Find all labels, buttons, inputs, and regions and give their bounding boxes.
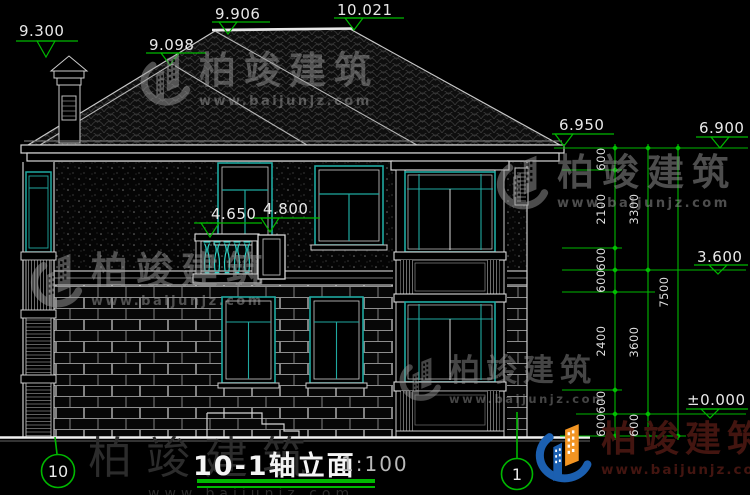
- dim-inner-600c: 600: [594, 259, 608, 303]
- elevation-label-roof-left: 9.300: [19, 22, 64, 40]
- dim-inner-600e: 600: [594, 403, 608, 447]
- title-underline-thick: [197, 479, 375, 483]
- elevation-label-second-floor: 3.600: [697, 248, 742, 266]
- elevation-drawing-canvas: 柏竣建筑 www.baijunjz.com 柏竣建筑 www.baijunjz.…: [0, 0, 750, 495]
- dim-middle-600: 600: [627, 403, 641, 447]
- elevation-label-hip: 9.098: [149, 36, 194, 54]
- watermark-brand: 柏竣建筑: [557, 154, 737, 191]
- watermark-right: 柏竣建筑 www.baijunjz.com: [492, 154, 737, 218]
- watermark-brand: 柏竣建筑: [91, 252, 271, 289]
- brand-name: 柏竣建筑: [601, 422, 750, 458]
- watermark-brand: 柏竣建筑: [449, 356, 606, 387]
- watermark-logo-icon: [396, 356, 442, 408]
- watermark-logo-icon: [136, 52, 192, 114]
- watermark-brand: 柏竣建筑: [199, 52, 379, 89]
- elevation-label-ridge-left: 9.906: [215, 5, 260, 23]
- dim-inner-600a: 600: [594, 137, 608, 181]
- axis-bubble-10: 10: [40, 462, 76, 481]
- dim-inner-2100: 2100: [594, 187, 608, 231]
- elevation-label-eave-right: 6.900: [699, 119, 744, 137]
- elevation-label-balcony-door: 4.800: [263, 200, 308, 218]
- watermark-url: www.baijunjz.com: [91, 294, 271, 309]
- watermark-logo-icon: [492, 154, 550, 218]
- watermark-logo-icon: [26, 252, 84, 316]
- watermark-url: www.baijunjz.com: [199, 94, 379, 109]
- drawing-scale: 1:100: [341, 452, 409, 476]
- elevation-label-eave-left: 6.950: [559, 116, 604, 134]
- brand-url: www.baijunjz.com: [601, 462, 750, 478]
- watermark-url: www.baijunjz.com: [557, 196, 737, 211]
- watermark-top: 柏竣建筑 www.baijunjz.com: [136, 52, 379, 114]
- first-floor-window-right: [306, 297, 367, 388]
- second-floor-window: [311, 166, 387, 250]
- watermark-bay: 柏竣建筑 www.baijunjz.com: [396, 356, 606, 408]
- watermark-left: 柏竣建筑 www.baijunjz.com: [26, 252, 271, 316]
- left-window: [26, 172, 51, 252]
- drawing-title: 10-1轴立面: [193, 444, 356, 483]
- axis-bubble-1: 1: [499, 465, 535, 484]
- dim-inner-2400: 2400: [594, 319, 608, 363]
- elevation-label-ridge-right: 10.021: [337, 1, 393, 19]
- elevation-label-balcony-rail: 4.650: [211, 205, 256, 223]
- dim-middle-3300: 3300: [627, 187, 641, 231]
- dim-middle-3600: 3600: [627, 320, 641, 364]
- watermark-url: www.baijunjz.com: [449, 392, 606, 406]
- title-underline-thin: [197, 486, 375, 488]
- dim-outer-7500: 7500: [657, 270, 671, 314]
- brand-logo-icon: [531, 422, 593, 492]
- elevation-label-ground: ±0.000: [687, 391, 746, 409]
